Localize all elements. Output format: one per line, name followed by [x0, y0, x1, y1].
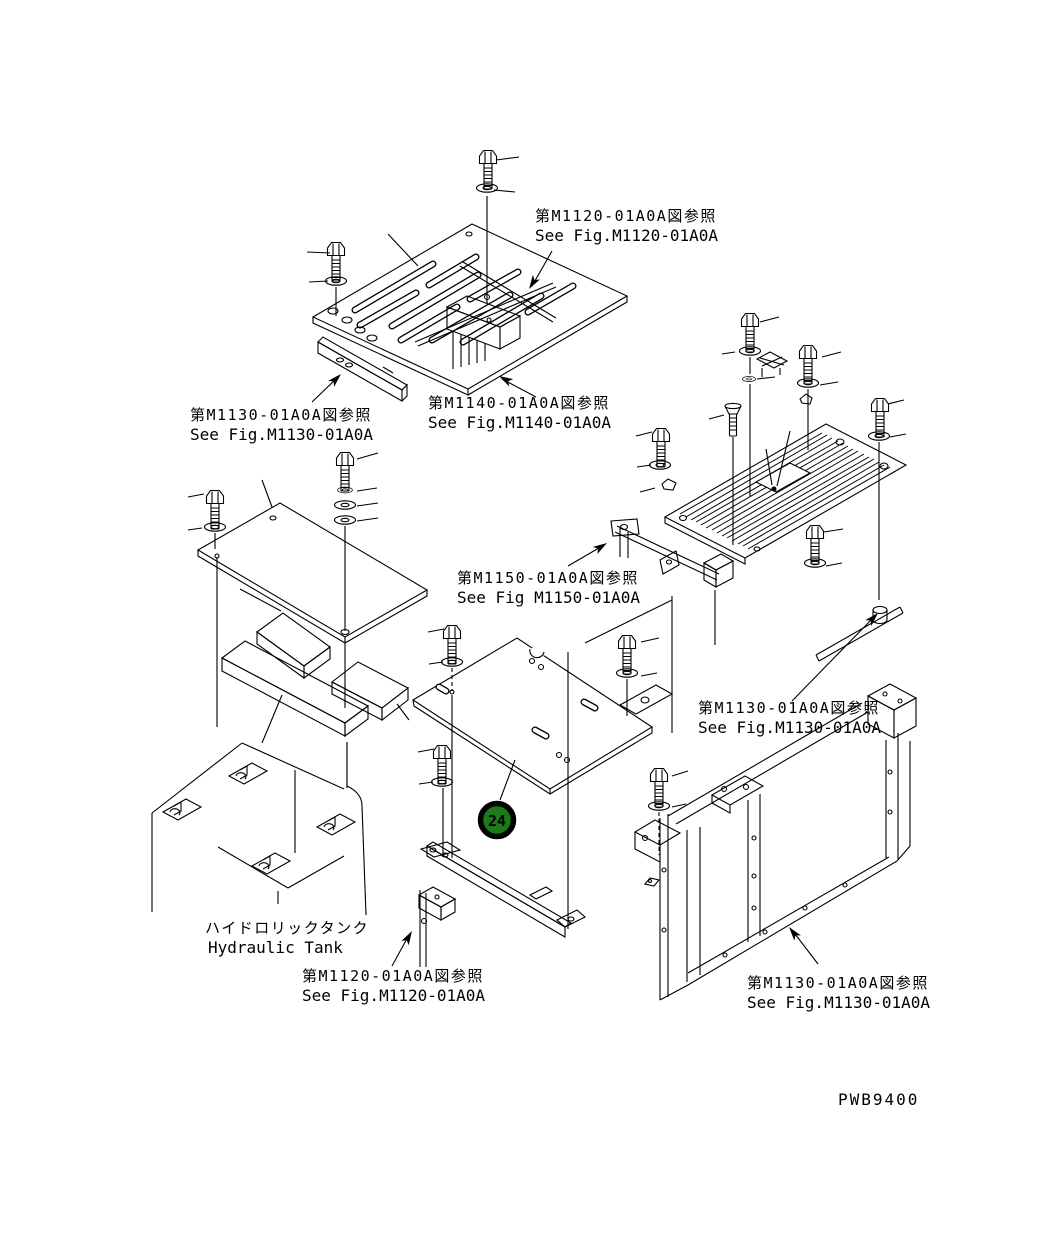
- parts-diagram-page: 24 第M1120-01A0A図参照 See Fig.M1120-01A0A 第…: [0, 0, 1064, 1256]
- svg-text:第M1140-01A0A図参照[interactable]: 第M1140-01A0A図参照: [428, 394, 610, 412]
- svg-text:See Fig.M1120-01A0A[interactable]: See Fig.M1120-01A0A: [535, 226, 718, 245]
- fig-ref-m1120-bottom[interactable]: 第M1120-01A0A図参照 See Fig.M1120-01A0A: [302, 967, 485, 1005]
- labels: 第M1120-01A0A図参照 See Fig.M1120-01A0A 第M11…: [190, 207, 930, 1109]
- balloon-number: 24: [488, 812, 506, 830]
- svg-text:第M1120-01A0A図参照[interactable]: 第M1120-01A0A図参照: [302, 967, 484, 985]
- top-cover-panel: [313, 224, 627, 395]
- louvered-grille-panel: [665, 424, 906, 564]
- hydraulic-tank: [152, 742, 366, 915]
- svg-text:Hydraulic Tank: Hydraulic Tank: [208, 938, 343, 957]
- fig-ref-m1140[interactable]: 第M1140-01A0A図参照 See Fig.M1140-01A0A: [428, 394, 611, 432]
- figure-code: PWB9400: [838, 1090, 919, 1109]
- bottom-mount-rail: [419, 842, 585, 967]
- left-cover-panel: [188, 453, 427, 789]
- fig-ref-m1130-top-left[interactable]: 第M1130-01A0A図参照 See Fig.M1130-01A0A: [190, 406, 373, 444]
- svg-text:第M1150-01A0A図参照[interactable]: 第M1150-01A0A図参照: [457, 569, 639, 587]
- svg-text:See Fig.M1130-01A0A[interactable]: See Fig.M1130-01A0A: [698, 718, 881, 737]
- top-left-support-rail: [318, 337, 407, 401]
- svg-text:See Fig M1150-01A0A[interactable]: See Fig M1150-01A0A: [457, 588, 640, 607]
- seal-pads: [222, 589, 409, 743]
- hydraulic-tank-label: ハイドロリックタンク Hydraulic Tank: [205, 919, 369, 957]
- fig-ref-m1150[interactable]: 第M1150-01A0A図参照 See Fig M1150-01A0A: [457, 569, 640, 607]
- svg-text:See Fig.M1130-01A0A[interactable]: See Fig.M1130-01A0A: [747, 993, 930, 1012]
- svg-text:See Fig.M1120-01A0A[interactable]: See Fig.M1120-01A0A: [302, 986, 485, 1005]
- fig-ref-m1120-top[interactable]: 第M1120-01A0A図参照 See Fig.M1120-01A0A: [535, 207, 718, 245]
- grille-fasteners: [636, 314, 906, 601]
- svg-text:第M1130-01A0A図参照[interactable]: 第M1130-01A0A図参照: [747, 974, 929, 992]
- part-balloon-24[interactable]: 24: [481, 760, 516, 837]
- svg-text:ハイドロリックタンク: ハイドロリックタンク: [205, 919, 369, 937]
- fig-ref-m1130-bottom-right[interactable]: 第M1130-01A0A図参照 See Fig.M1130-01A0A: [747, 974, 930, 1012]
- fig-ref-m1130-right[interactable]: 第M1130-01A0A図参照 See Fig.M1130-01A0A: [698, 699, 881, 737]
- svg-text:第M1130-01A0A図参照[interactable]: 第M1130-01A0A図参照: [698, 699, 880, 717]
- svg-text:第M1130-01A0A図参照[interactable]: 第M1130-01A0A図参照: [190, 406, 372, 424]
- side-panel-box: [635, 607, 916, 1001]
- svg-text:第M1120-01A0A図参照[interactable]: 第M1120-01A0A図参照: [535, 207, 717, 225]
- middle-cover-plate: [413, 626, 659, 859]
- svg-text:See Fig.M1130-01A0A[interactable]: See Fig.M1130-01A0A: [190, 425, 373, 444]
- parts-diagram-canvas: 24 第M1120-01A0A図参照 See Fig.M1120-01A0A 第…: [0, 0, 1064, 1256]
- cover-slots: [355, 257, 573, 342]
- svg-text:See Fig.M1140-01A0A[interactable]: See Fig.M1140-01A0A: [428, 413, 611, 432]
- leader-arrows: [312, 251, 881, 966]
